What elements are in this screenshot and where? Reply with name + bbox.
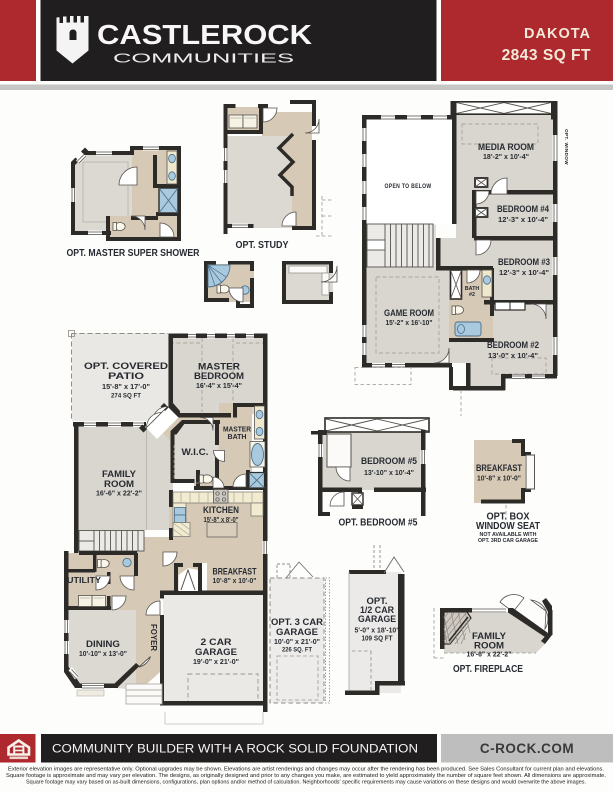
svg-text:10'-10" x 13'-0": 10'-10" x 13'-0" (79, 649, 127, 658)
svg-text:13'-0" x 10'-4": 13'-0" x 10'-4" (488, 351, 538, 360)
svg-text:12'-3" x 10'-4": 12'-3" x 10'-4" (498, 215, 548, 224)
svg-text:MEDIA ROOM: MEDIA ROOM (478, 142, 534, 152)
svg-text:DAKOTA: DAKOTA (524, 26, 591, 42)
svg-text:13'-10" x 10'-4": 13'-10" x 10'-4" (364, 468, 414, 477)
svg-text:WINDOW SEAT: WINDOW SEAT (476, 520, 540, 532)
svg-text:OPT. FIREPLACE: OPT. FIREPLACE (453, 663, 523, 675)
svg-text:Square footage is approximate: Square footage is approximate and may va… (6, 773, 606, 779)
svg-text:10'-0" x 21'-0": 10'-0" x 21'-0" (274, 637, 320, 646)
svg-text:DINING: DINING (86, 639, 120, 649)
svg-text:W.I.C.: W.I.C. (182, 447, 209, 457)
svg-text:Exterior elevation images are: Exterior elevation images are representa… (8, 767, 604, 773)
svg-text:CASTLEROCK: CASTLEROCK (97, 19, 312, 50)
svg-text:FAMILY: FAMILY (472, 631, 506, 641)
svg-text:GARAGE: GARAGE (195, 647, 237, 657)
svg-text:OPT. COVERED: OPT. COVERED (84, 361, 168, 371)
svg-text:2843 SQ FT: 2843 SQ FT (502, 47, 591, 64)
svg-text:BEDROOM: BEDROOM (194, 371, 244, 381)
svg-text:C-ROCK.COM: C-ROCK.COM (480, 741, 574, 756)
svg-text:COMMUNITY BUILDER WITH A ROCK: COMMUNITY BUILDER WITH A ROCK SOLID FOUN… (52, 742, 418, 756)
svg-text:226 SQ. FT: 226 SQ. FT (282, 647, 312, 654)
svg-text:BREAKFAST: BREAKFAST (213, 567, 258, 577)
svg-text:BEDROOM #2: BEDROOM #2 (487, 340, 539, 350)
svg-text:16'-4" x 15'-4": 16'-4" x 15'-4" (196, 381, 242, 390)
svg-text:BEDROOM #4: BEDROOM #4 (497, 204, 549, 214)
svg-text:15'-2" x 16'-10": 15'-2" x 16'-10" (386, 318, 433, 327)
svg-text:OPEN TO BELOW: OPEN TO BELOW (385, 183, 432, 190)
svg-text:2 CAR: 2 CAR (201, 637, 233, 647)
svg-text:BEDROOM #3: BEDROOM #3 (498, 257, 550, 267)
svg-text:ROOM: ROOM (104, 479, 134, 489)
svg-text:Square footage may vary based: Square footage may vary based on as-buil… (26, 780, 586, 786)
svg-text:10'-8" x 10'-0": 10'-8" x 10'-0" (213, 576, 257, 585)
svg-text:15'-8" x 17'-0": 15'-8" x 17'-0" (102, 382, 150, 391)
svg-text:BATH: BATH (228, 434, 247, 441)
svg-text:BREAKFAST: BREAKFAST (476, 463, 523, 473)
svg-text:OPT. 3 CAR: OPT. 3 CAR (271, 617, 324, 627)
svg-text:16'-6" x 22'-2": 16'-6" x 22'-2" (467, 650, 512, 659)
svg-text:OPT. WINDOW: OPT. WINDOW (564, 129, 569, 165)
svg-text:19'-0" x 21'-0": 19'-0" x 21'-0" (193, 657, 239, 666)
svg-text:274 SQ FT: 274 SQ FT (111, 393, 141, 400)
svg-text:OPT. STUDY: OPT. STUDY (236, 240, 289, 251)
svg-text:16'-6" x 22'-2": 16'-6" x 22'-2" (96, 489, 142, 498)
svg-text:MASTER: MASTER (198, 362, 241, 372)
svg-text:UTILITY: UTILITY (67, 576, 102, 585)
svg-text:BEDROOM #5: BEDROOM #5 (361, 456, 417, 466)
svg-text:FOYER: FOYER (149, 624, 159, 651)
svg-text:5'-0" x 18'-10": 5'-0" x 18'-10" (355, 626, 400, 635)
svg-text:GAME ROOM: GAME ROOM (384, 308, 434, 318)
svg-text:GARAGE: GARAGE (276, 627, 318, 637)
svg-text:COMMUNITIES: COMMUNITIES (113, 51, 295, 66)
svg-text:109 SQ FT: 109 SQ FT (362, 636, 394, 643)
svg-text:OPT. BEDROOM #5: OPT. BEDROOM #5 (339, 518, 418, 529)
svg-text:15'-8" x 8'-0": 15'-8" x 8'-0" (204, 515, 239, 524)
svg-text:GARAGE: GARAGE (358, 614, 396, 624)
svg-text:10'-8" x 10'-0": 10'-8" x 10'-0" (477, 474, 521, 483)
svg-text:#2: #2 (469, 292, 475, 298)
svg-text:PATIO: PATIO (108, 371, 144, 381)
svg-text:OPT. MASTER SUPER SHOWER: OPT. MASTER SUPER SHOWER (67, 248, 201, 259)
svg-text:MASTER: MASTER (223, 427, 251, 434)
svg-text:18'-2" x 10'-4": 18'-2" x 10'-4" (483, 152, 529, 161)
svg-text:12'-3" x 10'-4": 12'-3" x 10'-4" (499, 268, 549, 277)
svg-text:OPT. 3RD CAR GARAGE: OPT. 3RD CAR GARAGE (478, 538, 538, 544)
svg-text:KITCHEN: KITCHEN (203, 505, 239, 515)
svg-text:FAMILY: FAMILY (102, 469, 136, 479)
